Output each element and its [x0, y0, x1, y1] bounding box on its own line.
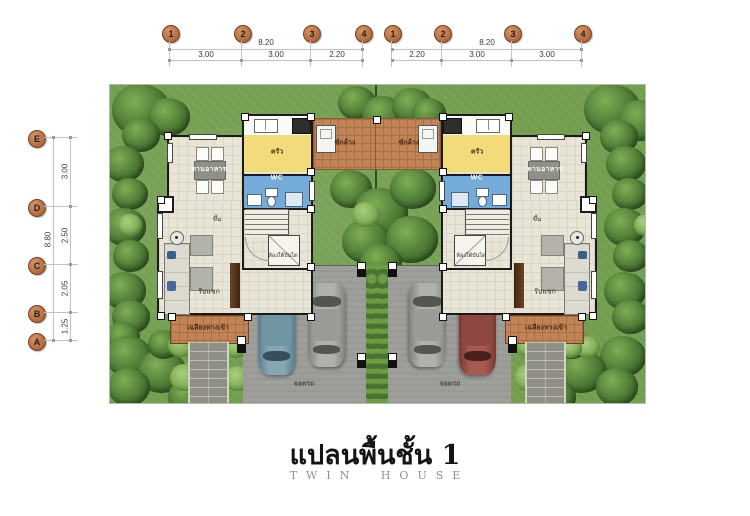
under-stair-room: [268, 235, 300, 266]
porch-post: [237, 336, 246, 353]
wall-corner-marker: [589, 196, 597, 204]
dimension-total: 8.80: [44, 220, 53, 260]
wall-corner-marker: [439, 168, 447, 176]
dimension-dot: [361, 48, 364, 51]
fence-post: [357, 262, 366, 277]
wall-corner-marker: [157, 196, 165, 204]
dimension-dot: [69, 136, 72, 139]
bush: [118, 214, 142, 236]
walkway: [525, 342, 566, 403]
armchair: [190, 235, 213, 256]
wc-label: WC: [271, 175, 284, 182]
wall-corner-marker: [164, 132, 172, 140]
tree: [612, 178, 645, 210]
dimension-segment: 3.00: [457, 50, 497, 59]
leader-line: [441, 41, 442, 67]
window: [189, 134, 217, 140]
dimension-dot: [580, 59, 583, 62]
dimension-segment: 3.00: [527, 50, 567, 59]
dining-chair: [196, 147, 209, 161]
tree: [112, 178, 148, 210]
tree: [613, 240, 645, 272]
sofa-pillow: [578, 281, 587, 291]
front-door-panel: [514, 263, 524, 308]
dimension-dot: [69, 339, 72, 342]
dimension-segment: 3.00: [61, 155, 70, 189]
kitchen-sink: [476, 119, 500, 133]
car-roof: [413, 309, 443, 341]
parking-label: จอดรถ: [440, 379, 461, 390]
grid-bubble: D: [28, 199, 46, 217]
wc-label: WC: [471, 175, 484, 182]
dining-room-label: ทานอาหาร: [191, 164, 226, 174]
washing-machine: [316, 125, 336, 153]
dimension-segment: 2.20: [397, 50, 437, 59]
stairs-up-label: ขึ้น: [533, 214, 541, 224]
wall-corner-marker: [244, 313, 252, 321]
dimension-dot: [52, 339, 55, 342]
kitchen-label: ครัว: [471, 147, 483, 158]
window: [591, 213, 597, 239]
hedge-strip: [377, 265, 388, 403]
wall-corner-marker: [307, 313, 315, 321]
tree: [596, 368, 638, 403]
car: [308, 283, 345, 367]
living-room-label: รับแขก: [534, 287, 556, 298]
porch-label: เฉลียงทางเข้า: [187, 323, 229, 334]
grid-bubble: C: [28, 257, 46, 275]
leader-line: [169, 41, 170, 67]
washing-label: ซักล้าง: [399, 138, 420, 149]
staircase: [245, 209, 289, 237]
wall-corner-marker: [502, 313, 510, 321]
window: [309, 181, 315, 201]
hedge-strip: [366, 265, 377, 403]
floor-plan-page: ทานอาหาร ครัว WC รับแขก ขึ้น ห้องใต้บันไ…: [0, 0, 750, 516]
sofa-pillow: [167, 251, 176, 259]
dimension-dot: [309, 59, 312, 62]
under-stair-room: [454, 235, 486, 266]
armchair: [541, 235, 564, 256]
dimension-segment: 2.50: [61, 219, 70, 253]
side-table: [170, 231, 184, 245]
dining-chair: [530, 180, 543, 194]
porch-post: [508, 336, 517, 353]
car-rear-window: [313, 345, 340, 354]
fence-post: [357, 353, 366, 368]
window: [581, 143, 587, 163]
dimension-dot: [69, 263, 72, 266]
car-rear-window: [464, 351, 491, 361]
dining-chair: [211, 180, 224, 194]
wall-corner-marker: [582, 132, 590, 140]
stairs-up-label: ขึ้น: [213, 214, 221, 224]
grid-bubble: 2: [434, 25, 452, 43]
dimension-segment: 3.00: [186, 50, 226, 59]
car-roof: [463, 311, 493, 346]
dimension-dot: [361, 59, 364, 62]
wc-shower: [285, 192, 303, 207]
tree: [606, 146, 645, 182]
car-windshield: [312, 296, 340, 307]
wall-corner-marker: [307, 168, 315, 176]
staircase: [465, 209, 509, 237]
kitchen-sink: [254, 119, 278, 133]
wall-corner-marker: [307, 263, 315, 271]
grid-bubble: 1: [162, 25, 180, 43]
car-windshield: [413, 296, 441, 307]
sofa-pillow: [167, 281, 176, 291]
wall-corner-marker: [505, 113, 513, 121]
dimension-line: [53, 138, 54, 341]
leader-line: [44, 137, 78, 138]
wc-basin: [247, 194, 262, 206]
parking-label: จอดรถ: [294, 379, 315, 390]
walkway: [188, 342, 229, 403]
dining-room-label: ทานอาหาร: [527, 164, 562, 174]
grid-bubble: 1: [384, 25, 402, 43]
tree: [612, 300, 645, 334]
wc-basin: [492, 194, 507, 206]
site-plan: ทานอาหาร ครัว WC รับแขก ขึ้น ห้องใต้บันไ…: [110, 85, 645, 403]
wall-corner-marker: [241, 113, 249, 121]
dimension-dot: [391, 48, 394, 51]
leader-line: [581, 41, 582, 67]
car-roof: [262, 311, 292, 346]
dimension-dot: [168, 48, 171, 51]
dining-chair: [545, 180, 558, 194]
grid-bubble: B: [28, 305, 46, 323]
house-unit: ทานอาหาร ครัว WC รับแขก ขึ้น ห้องใต้บันไ…: [377, 85, 597, 403]
dimension-dot: [580, 48, 583, 51]
leader-line: [391, 41, 392, 67]
porch-label: เฉลียงทางเข้า: [525, 323, 567, 334]
front-door-panel: [230, 263, 240, 308]
dimension-segment: 2.20: [317, 50, 357, 59]
living-room-label: รับแขก: [198, 287, 220, 298]
grid-bubble: E: [28, 130, 46, 148]
dimension-total: 8.20: [457, 38, 517, 47]
wall-corner-marker: [589, 312, 597, 320]
tree: [113, 240, 149, 272]
dimension-segment: 2.05: [61, 272, 70, 306]
grid-bubble: A: [28, 333, 46, 351]
wall-corner-marker: [439, 113, 447, 121]
dimension-dot: [240, 59, 243, 62]
dimension-dot: [69, 205, 72, 208]
dimension-dot: [69, 311, 72, 314]
side-table: [570, 231, 584, 245]
dimension-dot: [391, 59, 394, 62]
wall-corner-marker: [157, 312, 165, 320]
window: [167, 143, 173, 163]
house-unit: ทานอาหาร ครัว WC รับแขก ขึ้น ห้องใต้บันไ…: [157, 85, 377, 403]
washing-machine: [418, 125, 438, 153]
fence-post: [388, 262, 397, 277]
window: [157, 213, 163, 239]
leader-line: [44, 264, 78, 265]
dining-chair: [530, 147, 543, 161]
wall-corner-marker: [307, 113, 315, 121]
grid-bubble: 3: [303, 25, 321, 43]
car-rear-window: [263, 351, 290, 361]
grid-bubble: 4: [574, 25, 592, 43]
dimension-line: [392, 60, 582, 61]
wc-shower: [451, 192, 469, 207]
dimension-line: [170, 60, 363, 61]
dimension-dot: [440, 59, 443, 62]
tree: [110, 368, 150, 403]
under-stair-label: ห้องใต้บันได: [268, 252, 297, 260]
wc-toilet: [476, 188, 489, 197]
dining-chair: [211, 147, 224, 161]
wall-corner-marker: [373, 116, 381, 124]
fence-post: [388, 353, 397, 368]
window: [157, 271, 163, 299]
dimension-segment: 3.00: [256, 50, 296, 59]
window: [591, 271, 597, 299]
wall-corner-marker: [168, 313, 176, 321]
plan-subtitle: TWIN HOUSE: [0, 469, 750, 482]
dimension-dot: [52, 136, 55, 139]
under-stair-label: ห้องใต้บันได: [456, 252, 485, 260]
washing-label: ซักล้าง: [335, 138, 356, 149]
window: [439, 181, 445, 201]
leader-line: [362, 41, 363, 67]
wall-corner-marker: [439, 205, 447, 213]
dimension-dot: [510, 59, 513, 62]
car-rear-window: [414, 345, 441, 354]
grid-bubble: 4: [355, 25, 373, 43]
dining-chair: [196, 180, 209, 194]
sofa-pillow: [578, 251, 587, 259]
dimension-total: 8.20: [236, 38, 296, 47]
wall-corner-marker: [439, 313, 447, 321]
tree: [110, 146, 144, 182]
dimension-dot: [168, 59, 171, 62]
wall-corner-marker: [439, 263, 447, 271]
dining-chair: [545, 147, 558, 161]
window: [537, 134, 565, 140]
car-roof: [312, 309, 342, 341]
leader-line: [310, 41, 311, 67]
wall-corner-marker: [578, 313, 586, 321]
wall-corner-marker: [307, 205, 315, 213]
wc-toilet: [265, 188, 278, 197]
kitchen-label: ครัว: [271, 147, 283, 158]
leader-line: [44, 206, 78, 207]
